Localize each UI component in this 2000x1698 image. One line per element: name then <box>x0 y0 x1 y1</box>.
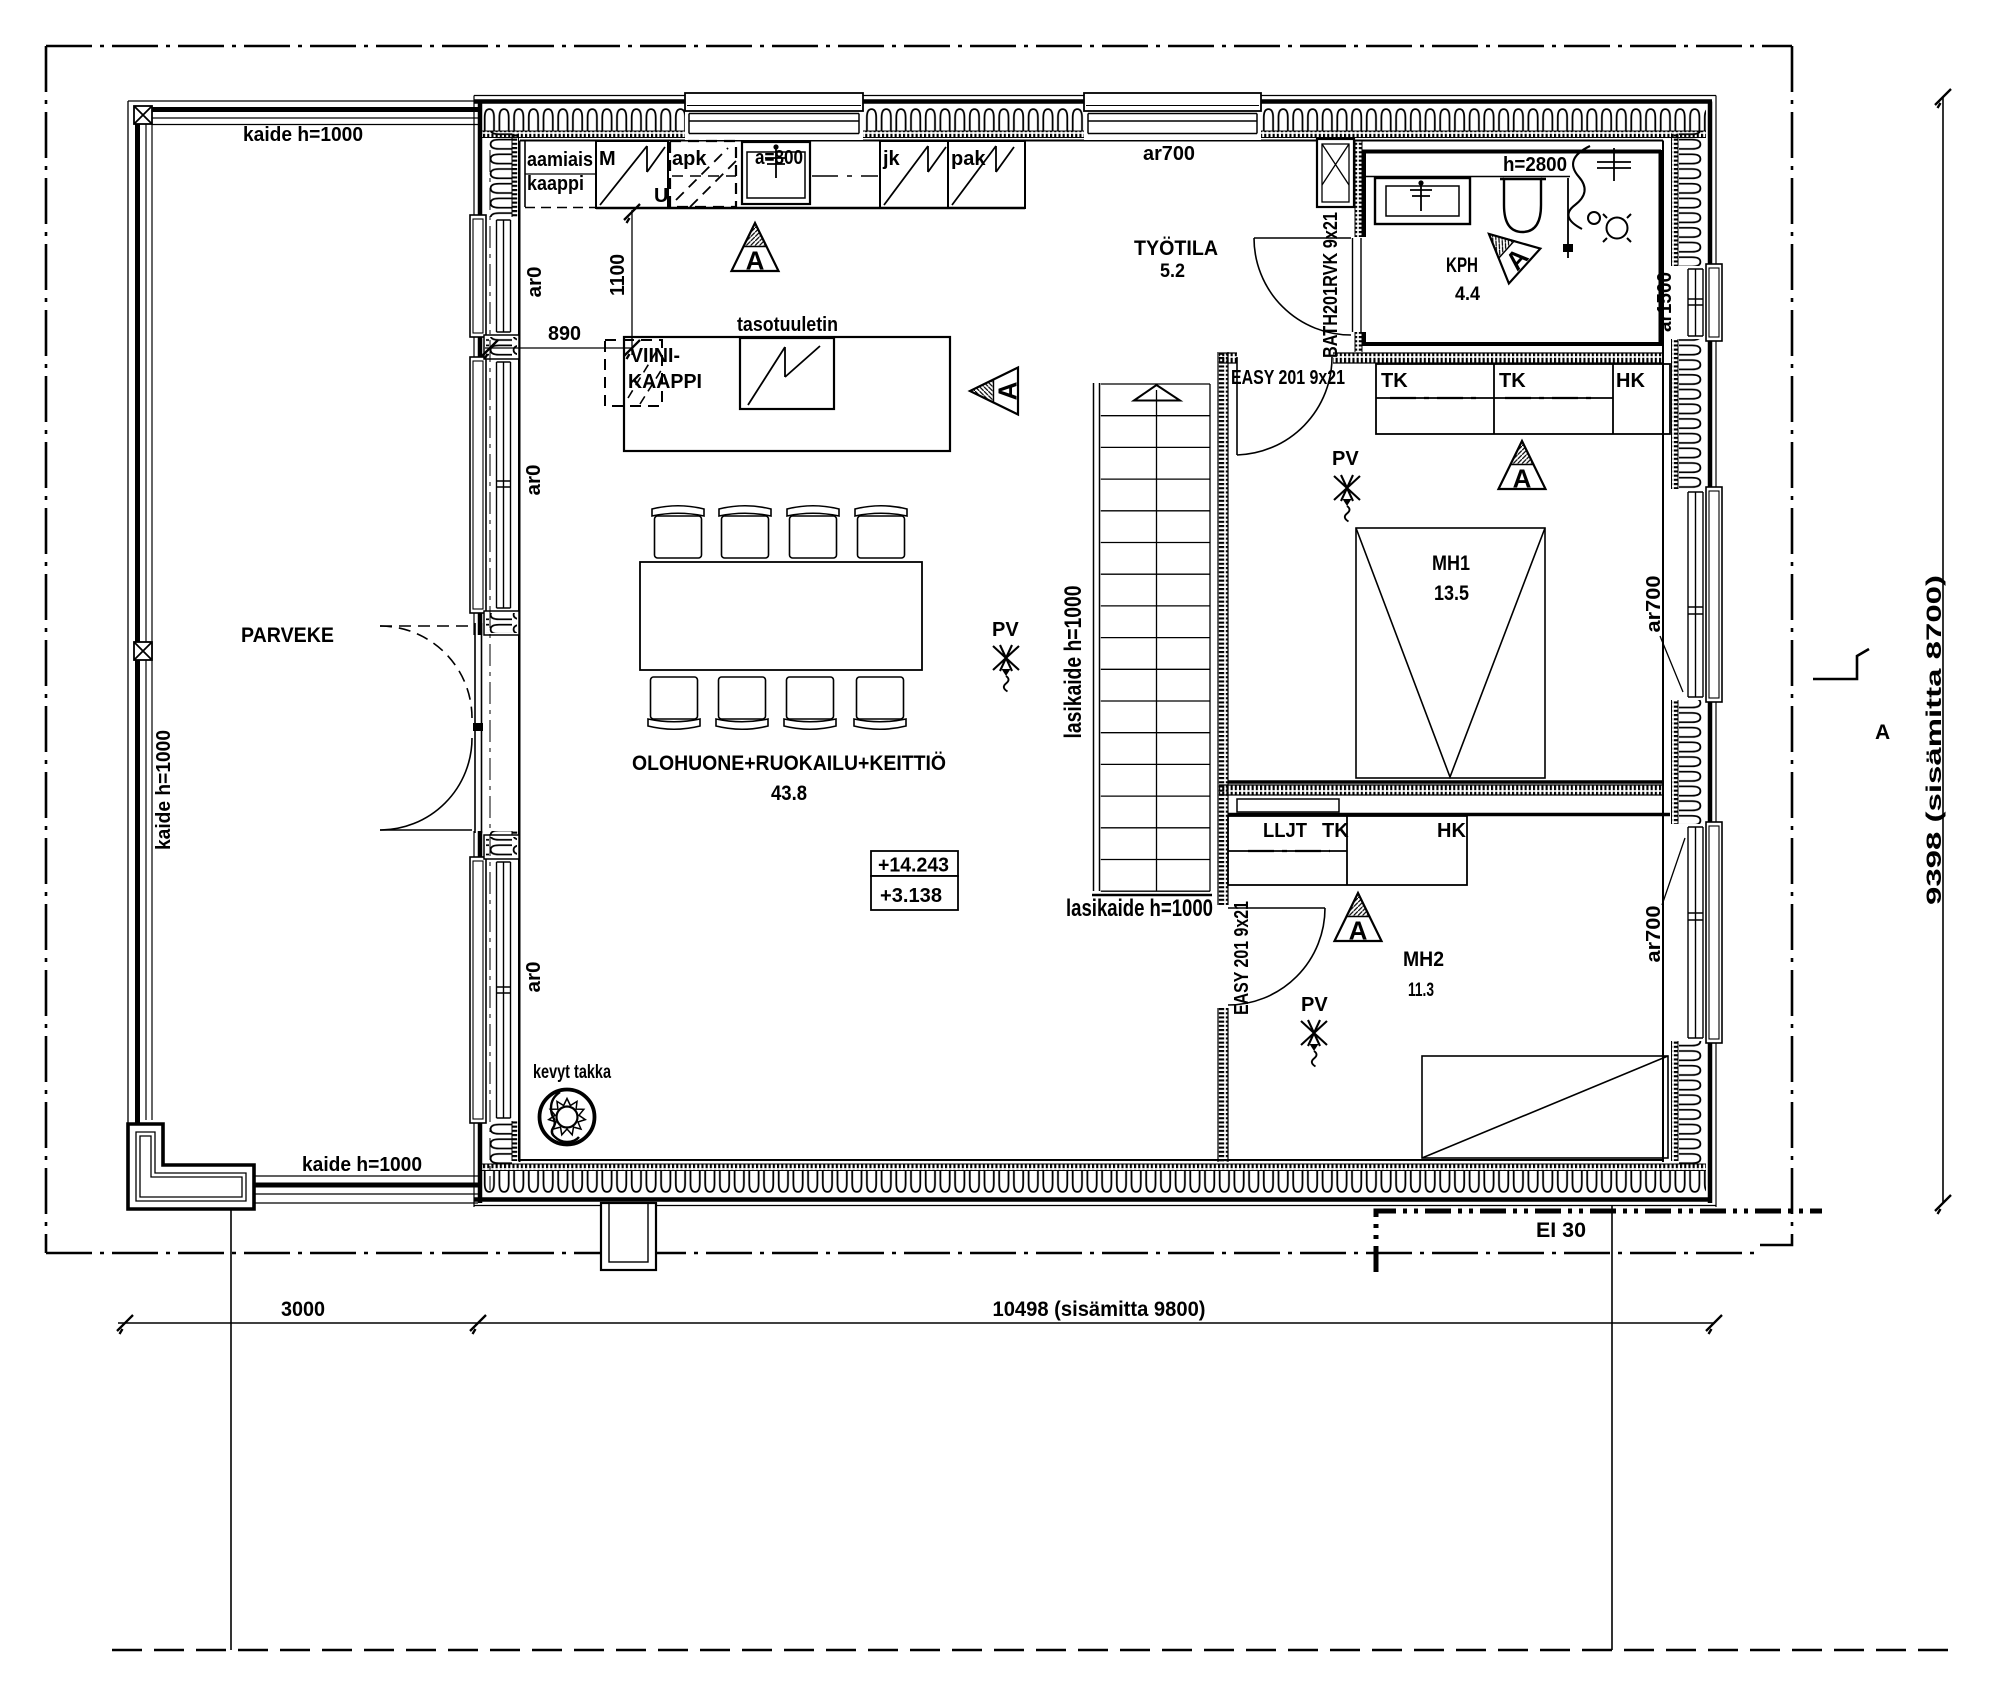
svg-text:M: M <box>599 148 616 170</box>
svg-text:lasikaide h=1000: lasikaide h=1000 <box>1060 586 1087 739</box>
svg-text:kaide h=1000: kaide h=1000 <box>302 1154 422 1176</box>
svg-text:ar0: ar0 <box>523 465 545 496</box>
svg-text:aamiais: aamiais <box>527 149 593 171</box>
svg-text:VIINI-: VIINI- <box>630 345 680 367</box>
svg-text:TK: TK <box>1499 370 1526 392</box>
svg-text:EASY 201 9x21: EASY 201 9x21 <box>1231 901 1253 1015</box>
svg-text:LLJT: LLJT <box>1263 820 1307 842</box>
svg-text:kevyt takka: kevyt takka <box>533 1062 611 1083</box>
svg-text:KPH: KPH <box>1446 254 1478 277</box>
svg-text:jk: jk <box>882 148 901 170</box>
svg-text:9398 (sisämitta 8700): 9398 (sisämitta 8700) <box>1923 575 1946 905</box>
svg-text:PV: PV <box>1301 994 1328 1016</box>
svg-text:ar700: ar700 <box>1143 143 1195 165</box>
svg-text:U: U <box>654 185 668 207</box>
svg-text:pak: pak <box>951 148 986 170</box>
svg-text:kaappi: kaappi <box>527 173 584 195</box>
svg-text:PARVEKE: PARVEKE <box>241 624 334 647</box>
svg-text:+3.138: +3.138 <box>880 885 942 907</box>
svg-text:EI 30: EI 30 <box>1536 1219 1586 1242</box>
svg-text:5.2: 5.2 <box>1160 261 1185 282</box>
svg-text:PV: PV <box>992 619 1019 641</box>
svg-text:tasotuuletin: tasotuuletin <box>737 314 838 336</box>
svg-text:KAAPPI: KAAPPI <box>628 371 702 393</box>
svg-text:EASY 201 9x21: EASY 201 9x21 <box>1231 367 1345 389</box>
svg-text:HK: HK <box>1616 370 1645 392</box>
svg-text:kaide h=1000: kaide h=1000 <box>243 124 363 146</box>
svg-text:PV: PV <box>1332 448 1359 470</box>
svg-text:a=800: a=800 <box>755 147 803 169</box>
svg-text:ar0: ar0 <box>524 267 546 298</box>
svg-text:+14.243: +14.243 <box>878 855 949 877</box>
svg-text:11.3: 11.3 <box>1408 980 1434 1001</box>
svg-text:ar0: ar0 <box>523 962 545 993</box>
svg-text:OLOHUONE+RUOKAILU+KEITTIÖ: OLOHUONE+RUOKAILU+KEITTIÖ <box>632 752 946 775</box>
svg-text:4.4: 4.4 <box>1455 284 1480 305</box>
svg-text:890: 890 <box>548 323 581 345</box>
svg-text:HK: HK <box>1437 820 1466 842</box>
svg-text:ar700: ar700 <box>1643 906 1665 963</box>
svg-text:TYÖTILA: TYÖTILA <box>1134 237 1218 260</box>
svg-text:MH2: MH2 <box>1403 948 1444 971</box>
svg-text:TK: TK <box>1322 820 1349 842</box>
svg-text:MH1: MH1 <box>1432 552 1470 575</box>
svg-text:A: A <box>1875 721 1890 744</box>
svg-text:ar700: ar700 <box>1643 576 1665 633</box>
svg-text:43.8: 43.8 <box>771 782 807 805</box>
svg-text:13.5: 13.5 <box>1434 582 1469 605</box>
svg-text:10498 (sisämitta 9800): 10498 (sisämitta 9800) <box>993 1298 1206 1321</box>
svg-text:ar1500: ar1500 <box>1654 272 1676 332</box>
svg-text:apk: apk <box>672 148 707 170</box>
svg-text:h=2800: h=2800 <box>1503 154 1567 176</box>
svg-text:kaide h=1000: kaide h=1000 <box>153 730 175 850</box>
svg-text:lasikaide h=1000: lasikaide h=1000 <box>1066 895 1213 922</box>
svg-text:TK: TK <box>1381 370 1408 392</box>
svg-text:3000: 3000 <box>281 1298 325 1321</box>
svg-text:1100: 1100 <box>607 254 629 296</box>
svg-text:BATH201RVK 9x21: BATH201RVK 9x21 <box>1320 212 1342 358</box>
